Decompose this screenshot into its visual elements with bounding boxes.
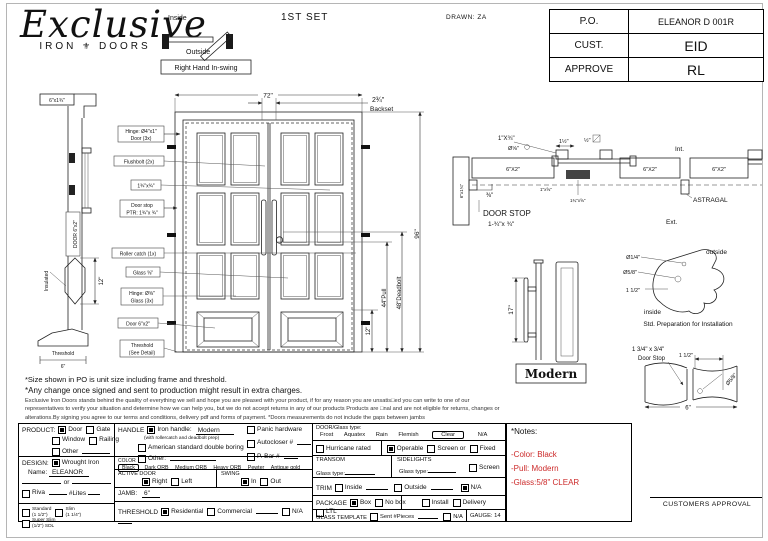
slim-sub: (1 1/4") [65,513,81,518]
product-title: PRODUCT: [22,427,55,434]
sidelights-glass-blank[interactable] [428,466,456,473]
active-left-label: Left [181,478,192,486]
approve-label: APPROVE [550,58,629,82]
design-name-label: Name: [28,469,47,476]
checkbox-hurricane[interactable]: Hurricane rated [316,445,371,453]
glass-option-selected[interactable]: Clear [432,431,464,439]
sidelights-title: SIDELIGHTS [397,457,431,465]
drawn-label: DRAWN: ZA [446,14,487,21]
panic-checkbox[interactable] [247,426,255,434]
checkbox-active-left[interactable]: Left [171,478,192,486]
active-swing-divider [216,470,217,487]
note-changes: *Any change once signed and sent to prod… [25,386,302,395]
autocloser-label: Autocloser # [257,439,293,447]
checkbox-template-na[interactable]: N/A [443,513,463,521]
american-boring-checkbox[interactable] [138,444,146,452]
color-section: COLOR Black Dark ORB Medium ORB Heavy OR… [114,456,313,470]
po-value: ELEANOR D 001R [629,10,764,34]
lites-label: #Lites [69,490,86,497]
cust-row: CUST. EID [550,34,764,58]
glass-option[interactable]: N/A [478,432,488,438]
riva-label: Riva [32,489,45,497]
checkbox-slim-sdl[interactable]: Slim(1 1/4") [55,507,81,518]
operable-checkbox[interactable] [387,445,395,453]
checkbox-window[interactable]: Window [52,436,85,444]
checkbox-fixed[interactable]: Fixed [470,445,496,453]
residential-label: Residential [171,508,203,516]
gauge-value: GAUGE: 14 [470,513,501,521]
iron-handle-value[interactable]: Modern [196,427,234,435]
design-title: DESIGN: [22,460,49,467]
threshold-title: THRESHOLD [118,509,158,516]
trim-outside-blank[interactable] [431,483,453,490]
glass-template-section: GLASS TEMPLATESent #PiecesN/A GAUGE: 14 [312,509,506,522]
checkbox-trim-inside[interactable]: Inside [335,484,362,492]
glass-option[interactable]: Aquatex [344,432,365,438]
checkbox-commercial[interactable]: Commercial [207,508,252,516]
commercial-blank[interactable] [256,507,278,514]
door-label: Door [68,426,82,434]
delivery-checkbox[interactable] [453,499,461,507]
standard-sdl-checkbox[interactable] [22,509,30,517]
swing-diagram: Inside Outside Right Hand In-swing [154,8,256,78]
glass-type-section: DOOR/Glass type: Frost Aquatex Rain Flem… [312,423,506,441]
threshold-section: THRESHOLDResidentialCommercialN/A [114,501,313,522]
checkbox-american-boring[interactable]: American standard double boring [138,444,244,452]
gate-checkbox[interactable] [86,426,94,434]
residential-checkbox[interactable] [161,508,169,516]
trim-outside-label: Outside [404,484,426,492]
transom-divider [391,456,392,477]
or-divider: or [22,479,111,487]
hurricane-label: Hurricane rated [326,445,371,453]
superslim-label: Super Slim [32,518,55,523]
superslim-sdl-checkbox[interactable] [22,520,30,528]
railing-checkbox[interactable] [89,437,97,445]
checkbox-residential[interactable]: Residential [161,508,203,516]
panic-label: Panic hardware [257,426,302,434]
po-row: P.O. ELEANOR D 001R [550,10,764,34]
checkbox-active-right[interactable]: Right [142,478,167,486]
checkbox-iron-handle[interactable]: Iron handle: [147,426,191,434]
autocloser-blank[interactable] [297,438,311,445]
swing-in-label: In [251,478,256,486]
swing-outside-label: Outside [186,49,210,56]
checkbox-panic[interactable]: Panic hardware [247,426,302,434]
handle-section: HANDLEIron handle:Modern (with rollercat… [114,423,313,457]
note-pull: -Pull: Modern [511,464,627,473]
active-right-checkbox[interactable] [142,478,150,486]
iron-handle-label: Iron handle: [157,426,191,434]
template-na-checkbox[interactable] [443,513,451,521]
box-label: Box [360,499,371,507]
checkbox-gate[interactable]: Gate [86,426,110,434]
superslim-sub: (1/2") SDL [32,524,54,529]
operable-label: Operable [397,445,424,453]
jamb-post-right [226,34,233,49]
gauge-divider [466,510,467,521]
door-checkbox[interactable] [58,426,66,434]
install-checkbox[interactable] [422,499,430,507]
checkbox-wrought-iron[interactable]: Wrought Iron [52,459,99,467]
other-checkbox[interactable] [52,448,60,456]
handle-title: HANDLE [118,427,144,434]
fleur-ornament-icon: ⚜ [82,41,93,51]
slim-label: Slim [65,507,74,512]
checkbox-delivery[interactable]: Delivery [453,499,486,507]
glass-option[interactable]: Flemish [398,432,418,438]
cust-value: EID [629,34,764,58]
nobox-checkbox[interactable] [375,499,383,507]
jamb-value[interactable]: 6" [142,490,160,498]
checkbox-other-product[interactable]: Other [52,448,78,456]
signature-line[interactable] [650,497,762,498]
riva-checkbox[interactable] [22,490,30,498]
active-left-checkbox[interactable] [171,478,179,486]
swing-inside-label: Inside [168,15,187,22]
sent-pieces-blank[interactable] [418,512,438,519]
standard-sub: (1 1/2") [32,513,48,518]
checkbox-riva[interactable]: Riva [22,489,45,497]
iron-handle-checkbox[interactable] [147,426,155,434]
jamb-post-left [162,34,169,49]
nobox-label: No box [385,499,406,507]
standard-label: Standard [32,507,51,512]
checkbox-sent-pieces[interactable]: Sent #Pieces [370,513,414,521]
jamb-section: JAMB: 6" [114,487,313,502]
fixed-label: Fixed [480,445,496,453]
logo-iron: IRON [39,41,76,52]
hurricane-divider [381,441,382,455]
other-product-blank[interactable] [82,447,110,454]
lites-blank[interactable] [88,488,100,495]
logo-doors: DOORS [99,41,151,52]
checkbox-screen-or[interactable]: Screen or [427,445,465,453]
product-section: PRODUCT:DoorGate WindowRailing Other [18,423,115,457]
trim-outside-checkbox[interactable] [394,484,402,492]
fixed-checkbox[interactable] [470,445,478,453]
template-na-label: N/A [453,514,463,522]
sdl-section: Standard(1 1/2")Slim(1 1/4")Super Slim(1… [18,503,115,522]
approve-value: RL [629,58,764,82]
sidelight-screen-label: Screen [479,464,500,472]
screen-or-checkbox[interactable] [427,445,435,453]
sidelights-glass-label: Glass type: [399,469,428,475]
po-label: P.O. [550,10,629,34]
package-section: PACKAGEBoxNo box InstallDeliveryLTL [312,495,506,510]
package-divider [401,496,402,509]
box-checkbox[interactable] [350,499,358,507]
red-notes-box: *Notes: -Color: Black -Pull: Modern -Gla… [506,423,632,522]
sent-pieces-checkbox[interactable] [370,513,378,521]
wrought-iron-checkbox[interactable] [52,459,60,467]
active-swing-section: ACTIVE DOOR RightLeft SWING InOut [114,469,313,488]
sent-pieces-label: Sent #Pieces [380,514,414,522]
notes-title: *Notes: [511,427,627,436]
checkbox-box[interactable]: Box [350,499,371,507]
american-boring-label: American standard double boring [148,444,244,452]
logo-subtitle: IRON ⚜ DOORS [20,41,170,52]
design-section: DESIGN:Wrought Iron Name: ELEANOR or Riv… [18,456,115,504]
wrought-iron-label: Wrought Iron [62,459,99,467]
checkbox-threshold-na[interactable]: N/A [282,508,303,516]
set-label: 1ST SET [281,12,328,23]
trim-title: TRIM [316,485,332,492]
hurricane-operable-section: Hurricane rated OperableScreen orFixed [312,440,506,456]
checkbox-door[interactable]: Door [58,426,82,434]
hurricane-checkbox[interactable] [316,445,324,453]
swing-in-checkbox[interactable] [241,478,249,486]
cust-label: CUST. [550,34,629,58]
checkbox-trim-outside[interactable]: Outside [394,484,426,492]
riva-blank[interactable] [49,488,67,495]
transom-sidelights-section: TRANSOM Glass type: SIDELIGHTS Glass typ… [312,455,506,478]
swing-out-checkbox[interactable] [260,478,268,486]
threshold-na-checkbox[interactable] [282,508,290,516]
jamb-title: JAMB: [118,490,137,497]
gate-label: Gate [96,426,110,434]
note-color: -Color: Black [511,450,627,459]
note-glass: -Glass:5/8" CLEAR [511,478,627,487]
swing-title: SWING [221,471,240,478]
or-label: or [64,479,70,487]
trim-inside-label: Inside [345,484,362,492]
screen-or-label: Screen or [437,445,465,453]
active-right-label: Right [152,478,167,486]
checkbox-superslim-sdl[interactable]: Super Slim(1/2") SDL [22,518,55,529]
trim-inside-checkbox[interactable] [335,484,343,492]
delivery-label: Delivery [463,499,486,507]
swing-out-label: Out [270,478,280,486]
trim-section: TRIMInsideOutsideN/A [312,477,506,496]
trim-na-label: N/A [471,484,482,492]
design-name-value[interactable]: ELEANOR [49,469,89,477]
checkbox-sidelight-screen[interactable]: Screen [469,464,500,472]
window-checkbox[interactable] [52,437,60,445]
sidelight-screen-checkbox[interactable] [469,464,477,472]
window-label: Window [62,436,85,444]
commercial-checkbox[interactable] [207,508,215,516]
glass-template-title: GLASS TEMPLATE [316,515,367,521]
swing-caption: Right Hand In-swing [174,65,237,72]
trim-inside-blank[interactable] [366,483,388,490]
trim-na-checkbox[interactable] [461,484,469,492]
threshold-na-label: N/A [292,508,303,516]
order-sheet: Exclusive IRON ⚜ DOORS Inside Outside Ri… [0,0,768,541]
autocloser-checkbox[interactable] [247,440,255,448]
customers-approval-label: CUSTOMERS APPROVAL [648,501,766,508]
other-label: Other [62,448,78,456]
slim-sdl-checkbox[interactable] [55,509,63,517]
glass-option[interactable]: Rain [376,432,388,438]
commercial-label: Commercial [217,508,252,516]
checkbox-trim-na[interactable]: N/A [461,484,482,492]
checkbox-swing-in[interactable]: In [241,478,256,486]
checkbox-autocloser[interactable]: Autocloser # [247,439,293,447]
fine-print: Exclusive Iron Doors stands behind the q… [25,397,503,422]
checkbox-install[interactable]: Install [422,499,449,507]
checkbox-standard-sdl[interactable]: Standard(1 1/2") [22,507,51,518]
transom-glass-blank[interactable] [345,468,375,475]
checkbox-operable[interactable]: Operable [387,445,424,453]
package-title: PACKAGE [316,500,347,507]
approve-row: APPROVE RL [550,58,764,82]
checkbox-swing-out[interactable]: Out [260,478,280,486]
po-table: P.O. ELEANOR D 001R CUST. EID APPROVE RL [549,9,764,82]
note-size: *Size shown in PO is unit size including… [25,375,227,384]
glass-option[interactable]: Frost [320,432,333,438]
transom-glass-label: Glass type: [316,471,345,477]
threshold-na-blank[interactable] [118,517,132,524]
install-label: Install [432,499,449,507]
